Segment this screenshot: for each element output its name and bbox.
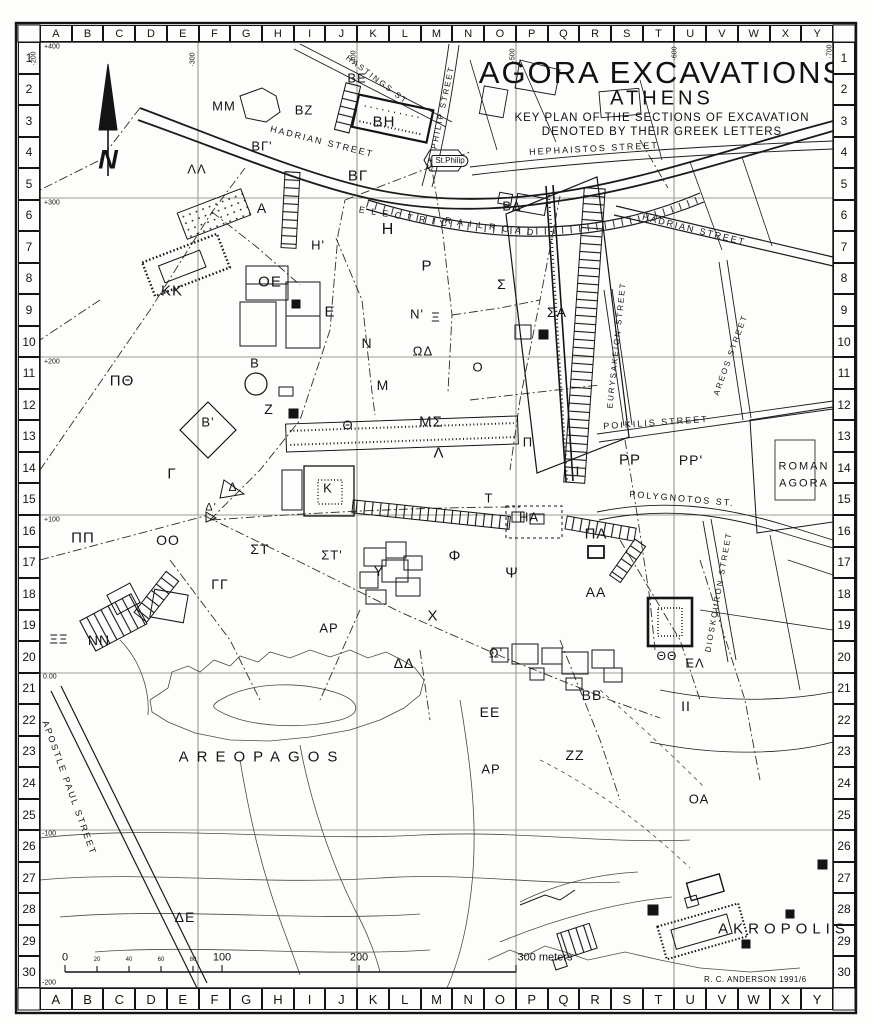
grid-number-left-18: 18 — [18, 578, 40, 610]
section-label-ΜΜ: ΜΜ — [212, 100, 236, 113]
grid-ref-label: 0.00 — [43, 674, 57, 681]
grid-number-right-20: 20 — [833, 641, 855, 673]
grid-letter-bottom-A: A — [40, 988, 72, 1010]
section-label-ΡΡ: ΡΡ — [619, 453, 641, 468]
grid-number-left-6: 6 — [18, 200, 40, 232]
grid-letter-top-N: N — [452, 25, 484, 42]
place-label: ROMAN — [779, 462, 830, 473]
grid-letter-top-E: E — [167, 25, 199, 42]
grid-letter-bottom-K: K — [357, 988, 389, 1010]
section-label-Θ: Θ — [342, 419, 353, 432]
section-label-Δ: Δ — [228, 481, 237, 493]
grid-number-left-27: 27 — [18, 862, 40, 894]
grid-letter-bottom-F: F — [199, 988, 231, 1010]
grid-number-right-6: 6 — [833, 200, 855, 232]
grid-ref-label: +100 — [44, 517, 60, 524]
section-label-ΚΚ: ΚΚ — [161, 284, 183, 299]
grid-letter-top-R: R — [579, 25, 611, 42]
section-label-Σ: Σ — [497, 277, 507, 291]
section-label-Ν: Ν — [361, 336, 372, 350]
grid-number-right-16: 16 — [833, 515, 855, 547]
grid-letter-bottom-S: S — [611, 988, 643, 1010]
grid-letter-bottom-B: B — [72, 988, 104, 1010]
section-label-ΡΡ': ΡΡ' — [679, 453, 703, 467]
scale-label-minor: 60 — [158, 957, 165, 963]
grid-letter-top-X: X — [770, 25, 802, 42]
section-label-ΠΠ: ΠΠ — [71, 531, 95, 546]
section-label-Α: Α — [257, 201, 267, 215]
section-label-Π: Π — [523, 436, 533, 449]
grid-letter-bottom-G: G — [230, 988, 262, 1010]
grid-number-right-1: 1 — [833, 42, 855, 74]
grid-number-right-13: 13 — [833, 420, 855, 452]
grid-number-right-3: 3 — [833, 105, 855, 137]
section-label-ΟΟ: ΟΟ — [156, 533, 180, 547]
grid-number-left-30: 30 — [18, 956, 40, 988]
section-label-Λ: Λ — [433, 446, 444, 461]
grid-number-right-23: 23 — [833, 736, 855, 768]
grid-letter-top-F: F — [199, 25, 231, 42]
section-label-ΒΗ: ΒΗ — [373, 115, 396, 130]
grid-ref-label: +400 — [44, 44, 60, 51]
section-label-Υ: Υ — [374, 564, 384, 578]
grid-number-left-3: 3 — [18, 105, 40, 137]
grid-letter-bottom-P: P — [516, 988, 548, 1010]
place-label: AGORA — [779, 479, 829, 490]
grid-number-left-26: 26 — [18, 830, 40, 862]
section-label-Μ: Μ — [377, 378, 390, 392]
grid-number-right-18: 18 — [833, 578, 855, 610]
grid-number-right-11: 11 — [833, 357, 855, 389]
section-label-ΟΑ: ΟΑ — [689, 793, 710, 806]
section-label-ΞΞ: ΞΞ — [50, 633, 69, 646]
grid-number-right-27: 27 — [833, 862, 855, 894]
grid-number-left-29: 29 — [18, 925, 40, 957]
grid-number-right-19: 19 — [833, 610, 855, 642]
grid-letter-bottom-U: U — [674, 988, 706, 1010]
grid-number-right-4: 4 — [833, 137, 855, 169]
grid-number-left-20: 20 — [18, 641, 40, 673]
grid-number-left-24: 24 — [18, 767, 40, 799]
agora-key-plan-map: AGORA EXCAVATIONS ATHENS KEY PLAN OF THE… — [0, 0, 872, 1024]
section-label-ΠΘ: ΠΘ — [110, 374, 135, 389]
section-label-Τ: Τ — [485, 492, 494, 505]
grid-number-right-25: 25 — [833, 799, 855, 831]
grid-number-left-10: 10 — [18, 326, 40, 358]
section-label-ΟΕ: ΟΕ — [258, 275, 282, 290]
grid-letter-bottom-W: W — [738, 988, 770, 1010]
grid-letter-top-P: P — [516, 25, 548, 42]
grid-number-right-26: 26 — [833, 830, 855, 862]
section-label-ΙΙ: ΙΙ — [681, 699, 691, 713]
section-label-Φ: Φ — [449, 549, 462, 564]
grid-letter-bottom-I: I — [294, 988, 326, 1010]
section-label-ΣΑ: ΣΑ — [547, 305, 567, 319]
grid-ref-label: ·400 — [351, 50, 358, 64]
section-label-Ν': Ν' — [410, 308, 424, 321]
map-subtitle-city: ATHENS — [610, 88, 714, 111]
section-label-Ι: Ι — [576, 464, 581, 478]
scale-label-minor: 40 — [126, 957, 133, 963]
grid-letter-top-T: T — [643, 25, 675, 42]
grid-number-left-5: 5 — [18, 168, 40, 200]
section-label-ΖΖ: ΖΖ — [565, 748, 584, 762]
grid-number-left-11: 11 — [18, 357, 40, 389]
section-label-ΔΔ: ΔΔ — [394, 656, 415, 670]
place-label: AKROPOLIS — [718, 922, 850, 937]
grid-ref-label: ·300 — [190, 52, 197, 66]
grid-number-right-24: 24 — [833, 767, 855, 799]
grid-letter-top-S: S — [611, 25, 643, 42]
grid-letter-top-Q: Q — [548, 25, 580, 42]
section-label-Η: Η — [382, 222, 395, 238]
grid-letter-top-U: U — [674, 25, 706, 42]
cartographer-credit: R. C. ANDERSON 1991/6 — [704, 975, 807, 984]
scale-label-minor: 20 — [94, 957, 101, 963]
section-label-ΘΘ: ΘΘ — [657, 650, 678, 662]
grid-letter-top-W: W — [738, 25, 770, 42]
grid-letter-top-M: M — [421, 25, 453, 42]
scale-label: 200 — [350, 953, 368, 964]
section-label-Κ: Κ — [323, 482, 333, 495]
grid-number-right-22: 22 — [833, 704, 855, 736]
section-label-ΑΡ: ΑΡ — [481, 763, 500, 776]
grid-letter-bottom-R: R — [579, 988, 611, 1010]
grid-number-right-2: 2 — [833, 74, 855, 106]
section-label-ΜΣ: ΜΣ — [419, 415, 443, 430]
section-label-Ψ: Ψ — [505, 566, 519, 581]
section-label-Ρ: Ρ — [421, 259, 432, 274]
grid-letter-bottom-C: C — [103, 988, 135, 1010]
section-label-ΗΑ: ΗΑ — [519, 511, 539, 524]
grid-letter-bottom-J: J — [325, 988, 357, 1010]
grid-letter-top-O: O — [484, 25, 516, 42]
section-label-Ω': Ω' — [489, 647, 503, 660]
grid-number-left-17: 17 — [18, 547, 40, 579]
place-label: St.Philip — [431, 155, 468, 167]
grid-number-left-8: 8 — [18, 263, 40, 295]
grid-letter-bottom-V: V — [706, 988, 738, 1010]
grid-number-right-8: 8 — [833, 263, 855, 295]
grid-letter-top-H: H — [262, 25, 294, 42]
grid-number-left-19: 19 — [18, 610, 40, 642]
map-subtitle-line1: KEY PLAN OF THE SECTIONS OF EXCAVATION — [514, 112, 809, 124]
section-label-ΒΓ: ΒΓ — [348, 169, 368, 184]
map-subtitle-line2: DENOTED BY THEIR GREEK LETTERS — [542, 126, 782, 138]
section-label-ΕΕ: ΕΕ — [480, 705, 501, 719]
grid-letter-top-K: K — [357, 25, 389, 42]
grid-ref-label: ·600 — [672, 46, 679, 60]
grid-number-right-15: 15 — [833, 483, 855, 515]
grid-number-left-22: 22 — [18, 704, 40, 736]
section-label-ΣΤ': ΣΤ' — [321, 549, 342, 562]
scale-label: 300 meters — [517, 953, 572, 964]
grid-number-right-21: 21 — [833, 673, 855, 705]
section-label-ΕΛ: ΕΛ — [685, 657, 704, 670]
grid-number-right-9: 9 — [833, 294, 855, 326]
section-label-ΒΒ: ΒΒ — [582, 688, 603, 702]
section-label-ΒΓ': ΒΓ' — [251, 140, 272, 153]
grid-letter-top-C: C — [103, 25, 135, 42]
grid-letter-bottom-E: E — [167, 988, 199, 1010]
scale-label: 100 — [213, 953, 231, 964]
grid-ref-label: -100 — [42, 831, 56, 838]
grid-ref-label: -200 — [42, 980, 56, 987]
grid-letter-bottom-Y: Y — [801, 988, 833, 1010]
grid-number-left-23: 23 — [18, 736, 40, 768]
section-label-Ε: Ε — [324, 305, 335, 320]
grid-letter-top-V: V — [706, 25, 738, 42]
grid-number-left-2: 2 — [18, 74, 40, 106]
grid-letter-top-L: L — [389, 25, 421, 42]
grid-letter-top-B: B — [72, 25, 104, 42]
grid-number-right-5: 5 — [833, 168, 855, 200]
grid-number-right-17: 17 — [833, 547, 855, 579]
grid-number-right-30: 30 — [833, 956, 855, 988]
grid-number-left-4: 4 — [18, 137, 40, 169]
grid-ref-label: +300 — [44, 200, 60, 207]
grid-number-right-12: 12 — [833, 389, 855, 421]
section-label-Γ: Γ — [167, 467, 176, 482]
grid-letter-bottom-T: T — [643, 988, 675, 1010]
grid-number-right-7: 7 — [833, 231, 855, 263]
grid-number-left-28: 28 — [18, 893, 40, 925]
grid-letter-bottom-M: M — [421, 988, 453, 1010]
section-label-Β: Β — [250, 357, 260, 370]
section-label-ΣΤ: ΣΤ — [250, 542, 269, 556]
grid-number-right-10: 10 — [833, 326, 855, 358]
scale-bar — [65, 965, 516, 972]
grid-number-left-13: 13 — [18, 420, 40, 452]
grid-letter-bottom-D: D — [135, 988, 167, 1010]
grid-letter-top-J: J — [325, 25, 357, 42]
grid-number-right-14: 14 — [833, 452, 855, 484]
contour-lines — [40, 640, 800, 988]
grid-number-left-7: 7 — [18, 231, 40, 263]
section-label-Ζ: Ζ — [264, 402, 274, 416]
grid-number-left-21: 21 — [18, 673, 40, 705]
section-label-Χ: Χ — [427, 609, 438, 624]
scale-label: 0 — [62, 953, 68, 964]
grid-number-left-16: 16 — [18, 515, 40, 547]
section-label-ΑΑ: ΑΑ — [586, 585, 607, 599]
grid-letter-top-G: G — [230, 25, 262, 42]
grid-letter-bottom-X: X — [770, 988, 802, 1010]
grid-letter-top-D: D — [135, 25, 167, 42]
place-label: AREOPAGOS — [179, 750, 346, 765]
grid-ref-label: ·500 — [510, 48, 517, 62]
grid-ref-label: ·200 — [31, 51, 38, 65]
section-label-Β': Β' — [201, 416, 214, 429]
grid-ref-label: ·700 — [827, 44, 834, 58]
grid-letter-bottom-L: L — [389, 988, 421, 1010]
grid-number-left-9: 9 — [18, 294, 40, 326]
grid-number-left-25: 25 — [18, 799, 40, 831]
section-label-ΔΕ: ΔΕ — [175, 910, 196, 924]
grid-letter-bottom-N: N — [452, 988, 484, 1010]
section-label-Δ': Δ' — [205, 503, 216, 514]
grid-letter-bottom-O: O — [484, 988, 516, 1010]
grid-number-left-14: 14 — [18, 452, 40, 484]
section-label-ΒΖ: ΒΖ — [295, 104, 314, 117]
grid-letter-bottom-H: H — [262, 988, 294, 1010]
grid-letter-bottom-Q: Q — [548, 988, 580, 1010]
section-label-ΓΓ: ΓΓ — [211, 577, 228, 591]
grid-letter-top-I: I — [294, 25, 326, 42]
section-label-ΠΑ: ΠΑ — [585, 527, 608, 542]
grid-number-left-15: 15 — [18, 483, 40, 515]
section-label-Ξ: Ξ — [431, 311, 440, 324]
map-title: AGORA EXCAVATIONS — [479, 55, 845, 91]
grid-number-left-12: 12 — [18, 389, 40, 421]
grid-letter-top-Y: Y — [801, 25, 833, 42]
section-label-ΛΛ: ΛΛ — [187, 163, 206, 176]
section-label-ΩΔ: ΩΔ — [413, 345, 433, 358]
section-label-Ο: Ο — [472, 361, 483, 374]
grid-letter-top-A: A — [40, 25, 72, 42]
section-label-ΒΔ: ΒΔ — [502, 200, 521, 213]
north-arrow-label: N — [98, 145, 118, 176]
grid-ref-label: +200 — [44, 359, 60, 366]
section-label-ΝΝ: ΝΝ — [88, 633, 110, 647]
scale-label-minor: 80 — [190, 957, 197, 963]
section-label-Η': Η' — [311, 239, 325, 252]
section-label-ΑΡ: ΑΡ — [319, 622, 338, 635]
